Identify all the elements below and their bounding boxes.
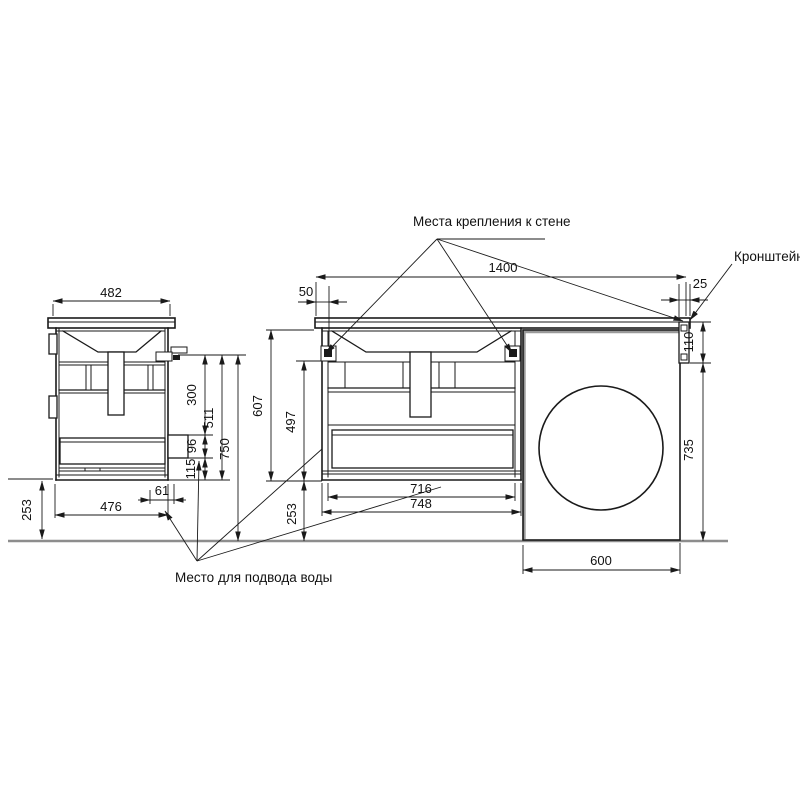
drawer-front xyxy=(332,430,513,468)
side-mount-bracket xyxy=(156,347,187,361)
dim-side-water-lower: 115 xyxy=(183,459,198,480)
countertop xyxy=(315,318,690,328)
drain-pipe-front xyxy=(410,352,431,417)
dim-side-upper-section: 300 xyxy=(184,384,199,406)
sink-bowl-side xyxy=(63,331,161,352)
drawing-canvas: 482 476 61 253 300 96 115 511 750 xyxy=(0,0,800,800)
wall-rail-upper xyxy=(49,334,57,354)
dim-front-machine-width: 600 xyxy=(590,553,612,568)
dim-side-top-width: 482 xyxy=(100,285,122,300)
washing-machine-body xyxy=(523,330,680,540)
sink-bowl-front xyxy=(332,331,511,352)
dim-front-bracket-height: 110 xyxy=(681,332,696,353)
technical-drawing: 482 476 61 253 300 96 115 511 750 xyxy=(0,0,800,800)
wall-mount-point-right xyxy=(505,346,520,361)
dim-front-inner-width: 716 xyxy=(410,481,432,496)
dim-side-total-height: 750 xyxy=(217,438,232,460)
dim-front-total-width: 1400 xyxy=(489,260,518,275)
bracket-label: Кронштейн xyxy=(734,249,800,264)
dim-side-bottom-width: 476 xyxy=(100,499,122,514)
wall-mount-point-left xyxy=(321,346,336,361)
washing-machine xyxy=(523,330,680,540)
dim-front-cabinet-height: 607 xyxy=(250,395,265,417)
side-view-cabinet xyxy=(48,318,188,480)
drain-pipe-side xyxy=(108,352,124,415)
wall-rail-lower xyxy=(49,396,57,418)
wall-mount-label: Места крепления к стене xyxy=(413,214,571,229)
dim-side-water-zone: 96 xyxy=(184,439,199,453)
dim-front-niche-height: 735 xyxy=(681,439,696,461)
dim-front-outer-width: 748 xyxy=(410,496,432,511)
dim-side-mid-section: 511 xyxy=(201,408,216,429)
dim-side-floor-clearance: 253 xyxy=(19,499,34,521)
dim-front-body-height: 497 xyxy=(283,411,298,433)
dim-side-water-offset: 61 xyxy=(155,483,169,498)
dim-front-mount-offset: 50 xyxy=(299,284,313,299)
water-supply-label: Место для подвода воды xyxy=(175,570,332,585)
bracket-screw-top xyxy=(681,325,687,331)
dim-front-edge-offset: 25 xyxy=(693,276,707,291)
dim-front-floor-clearance: 253 xyxy=(284,503,299,525)
bracket-screw-bottom xyxy=(681,354,687,360)
